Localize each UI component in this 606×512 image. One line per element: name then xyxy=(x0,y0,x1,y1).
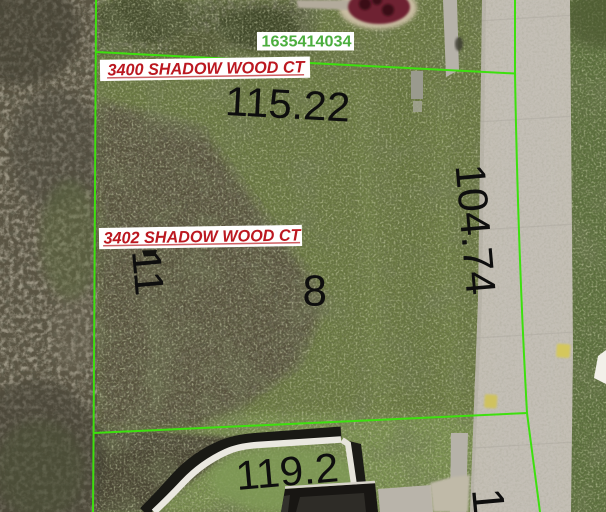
svg-text:115.22: 115.22 xyxy=(224,78,351,130)
svg-text:1635414034: 1635414034 xyxy=(262,34,352,51)
svg-text:12: 12 xyxy=(462,486,517,512)
svg-text:119.2: 119.2 xyxy=(234,444,341,499)
svg-text:8: 8 xyxy=(303,267,327,316)
